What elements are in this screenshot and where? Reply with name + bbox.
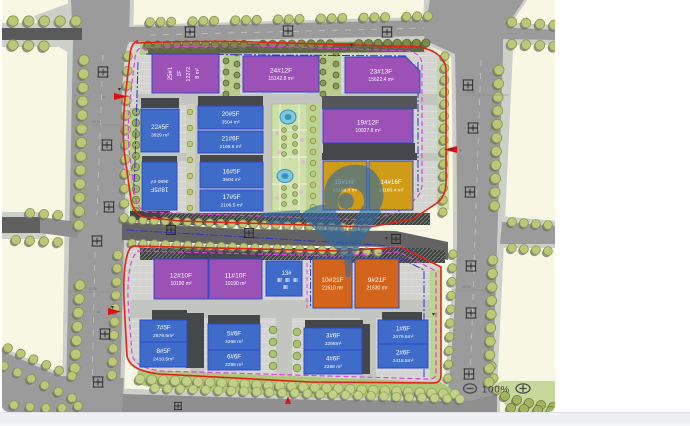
- svg-text:3504 m²: 3504 m²: [222, 120, 240, 126]
- svg-text:2679.5m²: 2679.5m²: [153, 333, 174, 339]
- svg-text:21630 m²: 21630 m²: [366, 286, 387, 292]
- svg-text:18#5F: 18#5F: [150, 186, 168, 193]
- svg-text:100%: 100%: [482, 385, 510, 396]
- svg-text:35.35: 35.35: [92, 120, 101, 124]
- svg-text:24#12F: 24#12F: [270, 68, 292, 75]
- svg-text:10190 m²: 10190 m²: [170, 281, 191, 287]
- svg-text:10#21F: 10#21F: [321, 277, 343, 284]
- svg-text:xx: xx: [97, 310, 101, 314]
- svg-text:xx: xx: [103, 95, 107, 99]
- svg-text:2268 m²: 2268 m²: [324, 364, 342, 370]
- svg-text:3298 m²: 3298 m²: [225, 362, 243, 368]
- svg-text:3504 m²: 3504 m²: [223, 177, 241, 183]
- svg-text:10190 m²: 10190 m²: [225, 281, 246, 287]
- svg-text:15622.4 m²: 15622.4 m²: [368, 77, 394, 83]
- svg-text:12272.: 12272.: [186, 66, 192, 82]
- svg-text:8 m²: 8 m²: [195, 68, 201, 79]
- svg-text:2418.5m²: 2418.5m²: [393, 358, 414, 364]
- svg-text:2679.5m²: 2679.5m²: [393, 334, 414, 340]
- svg-text:7#5F: 7#5F: [156, 325, 170, 332]
- svg-text:4#6F: 4#6F: [326, 356, 340, 363]
- svg-text:23#13F: 23#13F: [370, 69, 392, 76]
- svg-text:11#10F: 11#10F: [225, 273, 247, 280]
- svg-text:21610 m²: 21610 m²: [322, 286, 343, 292]
- svg-text:1F: 1F: [177, 70, 183, 76]
- svg-text:10027.6 m²: 10027.6 m²: [355, 128, 381, 134]
- svg-text:35.35: 35.35: [466, 90, 475, 94]
- svg-text:xx: xx: [459, 148, 463, 152]
- svg-text:17#5F: 17#5F: [223, 194, 241, 201]
- svg-text:3929 m²: 3929 m²: [151, 133, 169, 139]
- svg-text:2410.5m²: 2410.5m²: [153, 357, 174, 363]
- svg-text:22#5F: 22#5F: [151, 124, 169, 131]
- svg-text:15142.8 m²: 15142.8 m²: [268, 76, 294, 82]
- svg-text:16#5F: 16#5F: [223, 169, 241, 176]
- svg-text:3298 m²: 3298 m²: [225, 339, 243, 345]
- svg-text:12#10F: 12#10F: [170, 273, 192, 280]
- svg-text:35.35: 35.35: [88, 287, 97, 291]
- svg-text:35.35: 35.35: [462, 285, 471, 289]
- svg-text:2106.5 m²: 2106.5 m²: [219, 144, 241, 150]
- svg-text:19#12F: 19#12F: [357, 120, 379, 127]
- svg-text:13#: 13#: [281, 271, 292, 277]
- svg-text:25#1: 25#1: [168, 66, 174, 80]
- svg-text:3#6F: 3#6F: [326, 333, 340, 340]
- svg-text:3650 m²: 3650 m²: [150, 178, 168, 184]
- svg-text:1#6F: 1#6F: [396, 326, 410, 333]
- svg-text:3298m²: 3298m²: [325, 341, 342, 347]
- svg-text:2#6F: 2#6F: [396, 350, 410, 357]
- svg-text:6#6F: 6#6F: [227, 354, 241, 361]
- svg-text:2106.5 m²: 2106.5 m²: [220, 203, 242, 209]
- svg-text:14#16F: 14#16F: [380, 179, 402, 186]
- svg-text:8#5F: 8#5F: [156, 348, 170, 355]
- svg-text:5#6F: 5#6F: [227, 331, 241, 338]
- svg-text:9#21F: 9#21F: [368, 277, 387, 284]
- svg-text:20#5F: 20#5F: [222, 111, 240, 118]
- svg-text:21#6F: 21#6F: [222, 136, 240, 143]
